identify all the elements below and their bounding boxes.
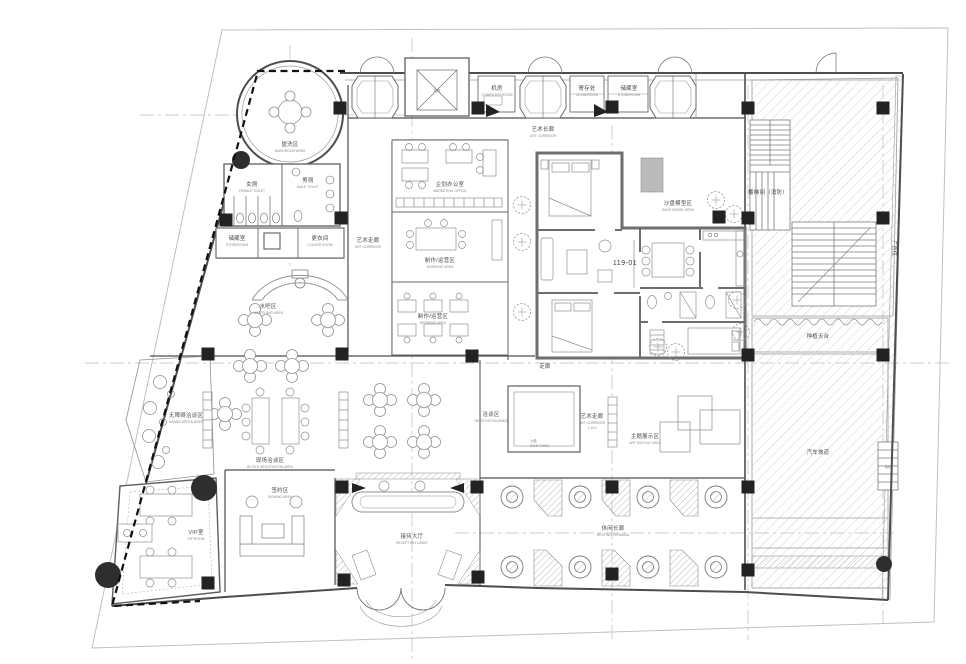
label-locker-en: LOCKER ROOM	[307, 243, 333, 247]
label-stair-fire: 楼梯间（消防）	[748, 188, 788, 196]
water-bar-counter	[252, 270, 348, 300]
label-stair-small: 楼梯	[885, 464, 892, 469]
dining-furniture	[642, 243, 694, 277]
label-elevator: 电梯	[434, 88, 441, 93]
label-storeroom-left-en: STOREROOM	[226, 243, 248, 247]
label-work1-zh: 制作/运营区	[425, 256, 456, 264]
label-art-corridor-mid-code: 1.10.4	[588, 426, 597, 430]
lounge-hexagon	[126, 356, 214, 482]
label-work2-zh: 制作/运营区	[418, 312, 449, 320]
label-sand-table-en: SAND TABLE	[530, 444, 550, 448]
sand-table-model	[508, 386, 580, 452]
entry-mat	[356, 473, 460, 479]
label-negotiation-b-zh: 洽谈区	[482, 410, 499, 418]
label-signing-zh: 签约区	[271, 486, 288, 494]
bedroom-2-furniture	[552, 300, 592, 352]
long-tables	[242, 388, 309, 454]
label-model-area-zh: 沙盘模型区	[664, 199, 693, 207]
elevator-shaft	[405, 58, 469, 116]
closet	[641, 158, 663, 192]
grand-stair	[792, 222, 876, 306]
label-veranda-zh: 休闲长廊	[602, 524, 625, 532]
ramp-strip	[752, 556, 888, 568]
label-art-corridor-left-en: ART CORRIDOR	[355, 245, 382, 249]
label-negotiation-b-en: NEGOTIATION AREA	[474, 419, 508, 423]
label-male-toilet-en: MALE TOILET	[297, 185, 319, 189]
entrance-doors	[357, 588, 445, 626]
label-signing-en: SIGNING AREA	[268, 495, 293, 499]
label-vip-en: VIP ROOM	[188, 537, 205, 541]
label-corridor-b-zh: 走廊	[539, 362, 551, 370]
label-sand-table-zh: 沙盘	[530, 438, 537, 443]
reception-lobby	[336, 473, 480, 626]
label-reception-zh: 接待大厅	[401, 532, 424, 540]
label-computer-room-zh: 机房	[491, 84, 502, 92]
label-theme-zh: 主题展示区	[631, 432, 660, 440]
rug-right	[438, 550, 462, 580]
label-computer-room-en: COMPUTER ROOM	[482, 93, 513, 97]
top-right-door	[816, 53, 836, 73]
label-model-area-en: SAND MODEL AREA	[662, 208, 695, 212]
entry-porch-1	[352, 57, 398, 118]
label-marketing-zh: 企划办公室	[436, 180, 465, 188]
label-theme-en: ART DISPLAY AREA	[629, 441, 661, 445]
entry-porch-3	[650, 57, 696, 118]
label-locker-zh: 更衣间	[311, 234, 328, 242]
label-handicapped-en: HANDICAPPED AREA	[169, 420, 204, 424]
label-work2-en: WORKING AREA	[420, 321, 447, 325]
label-washroom-en: WASHROOM AREA	[275, 149, 306, 153]
rug-left	[352, 550, 376, 580]
office-block	[392, 140, 508, 355]
reception-desk	[352, 481, 464, 512]
label-art-corridor-mid-en: ART CORRIDOR	[579, 421, 606, 425]
floor-plan-sheet: 盥洗区 WASHROOM AREA 女厕 FEMALE TOILET 男厕 MA…	[0, 0, 966, 664]
label-water-bar-zh: 水吧区	[259, 302, 276, 310]
label-cloakroom-zh: 寄存处	[578, 84, 595, 92]
car-ramp-area	[752, 354, 888, 588]
floor-plan-drawing: 盥洗区 WASHROOM AREA 女厕 FEMALE TOILET 男厕 MA…	[0, 0, 966, 664]
label-car-ramp: 汽车坡道	[807, 448, 830, 456]
label-female-toilet-en: FEMALE TOILET	[239, 189, 265, 193]
signing-room	[240, 496, 304, 556]
fire-stairwell	[750, 120, 790, 230]
label-negotiation-main-zh: 现场洽谈区	[256, 456, 285, 464]
label-washroom-zh: 盥洗区	[281, 140, 298, 148]
label-vip-zh: VIP室	[188, 528, 204, 536]
label-female-toilet-zh: 女厕	[246, 180, 258, 188]
label-storeroom-top-zh: 储藏室	[620, 84, 637, 92]
label-cloakroom-en: CLOAKROOM	[576, 93, 598, 97]
label-storeroom-left-zh: 储藏室	[228, 234, 245, 242]
label-water-bar-en: WATER BAR AREA	[253, 311, 284, 315]
label-terrace: 种植天台	[807, 332, 830, 340]
bedroom-1-furniture	[541, 160, 599, 216]
label-veranda-en: RESTING VERANDA	[597, 533, 630, 537]
label-reception-en: RECEPTION LOBBY	[396, 541, 429, 545]
label-art-corridor-top-zh: 艺术长廊	[532, 125, 555, 133]
label-male-toilet-zh: 男厕	[302, 177, 314, 184]
label-art-corridor-left-zh: 艺术走廊	[357, 236, 380, 244]
label-marketing-en: MARKETING OFFICE	[433, 189, 467, 193]
label-handicapped-zh: 无障碍洽谈区	[169, 411, 203, 419]
label-art-corridor-top-en: ART CORRIDOR	[530, 134, 557, 138]
label-unit-number: 119-01	[613, 260, 637, 267]
sand-table-hall	[508, 386, 740, 452]
entry-porch-2	[520, 57, 566, 118]
label-art-corridor-mid-zh: 艺术走廊	[581, 412, 604, 420]
label-negotiation-main-en: IN-SITE NEGOTIATION AREA	[247, 465, 294, 469]
label-ad-space: 广告位	[891, 240, 899, 256]
label-work1-en: WORKING AREA	[427, 265, 454, 269]
show-unit-119-01	[537, 153, 745, 358]
label-storeroom-top-en: STOREROOM	[618, 93, 640, 97]
toilets	[224, 164, 340, 226]
art-installation	[660, 396, 740, 452]
